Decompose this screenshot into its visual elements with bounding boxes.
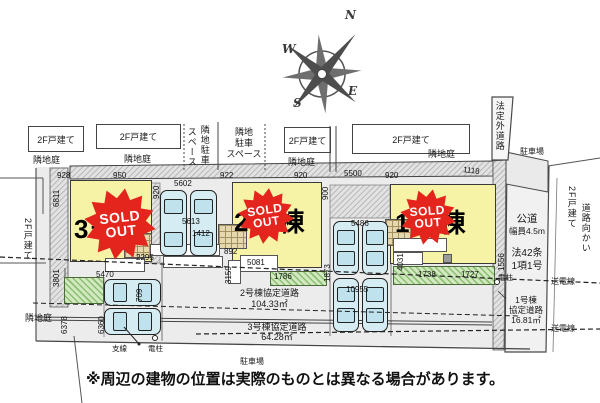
compass-rose-icon: [266, 18, 378, 130]
dim: 5500: [344, 170, 362, 178]
building-3-garden: [64, 277, 104, 304]
guy-wire-label: 支線: [112, 344, 127, 353]
neighbor-house-2-label: 2F戸建て: [120, 130, 158, 143]
utility-pole-right-label: 電柱: [498, 273, 513, 282]
compass-south-label: S: [293, 96, 302, 110]
dim: 900: [322, 187, 330, 200]
unofficial-road-label: 法定外道路: [494, 101, 505, 151]
power-line-label-2: 送電線: [551, 324, 575, 334]
compass-east-label: E: [348, 84, 357, 98]
kyotei-road-1-l2: 協定道路: [504, 305, 548, 315]
neighbor-parking-l3: スペース: [222, 149, 266, 160]
neighbor-parking-l2: 駐車: [222, 138, 266, 149]
south-parking-label: 駐車場: [240, 357, 264, 367]
car: [333, 221, 359, 275]
sold-out-line2: OUT: [410, 216, 446, 231]
kyotei-road-2-area: 104.33㎡: [222, 299, 317, 310]
neighbor-house-3: 2F戸建て: [284, 127, 331, 153]
dim: 5602: [174, 180, 192, 188]
dim: 6378: [61, 316, 69, 334]
dim: 2295: [136, 254, 154, 262]
car: [362, 221, 388, 275]
neighbor-parking-l1: 隣地: [222, 127, 266, 138]
dim: 1727: [461, 271, 479, 279]
dim: 892: [224, 248, 237, 256]
kyotei-road-1-area: 16.81㎡: [504, 315, 548, 325]
parking-bay2-hatch: [330, 185, 390, 218]
power-line-label-1: 送電線: [551, 277, 575, 287]
compass-north-label: N: [345, 8, 356, 22]
west-neighbor-house-label: 2F戸建て: [22, 218, 33, 261]
building-3-porch-b: [163, 256, 223, 268]
neighbor-parking-horizontal: 隣地 駐車 スペース: [222, 127, 266, 159]
public-road-width: 幅員4.5m: [503, 226, 551, 236]
dim: 920: [294, 172, 307, 180]
sold-out-line2: OUT: [249, 214, 286, 231]
dim: 1786: [274, 273, 292, 281]
public-road-name: 公道: [505, 213, 549, 226]
neighbor-parking-vertical-col2: 隣地駐車: [199, 125, 210, 165]
dim: 1556: [498, 253, 506, 271]
dim: 5470: [96, 271, 114, 279]
site-plan: N W S E 2F戸建て 隣地庭 2F戸建て 隣地庭 スペース 隣地駐車 隣地…: [0, 0, 600, 403]
public-road-law-1: 法42条: [505, 248, 549, 260]
dim: 5081: [247, 259, 265, 267]
dim: 1738: [418, 271, 436, 279]
kyotei-road-2-label: 2号棟協定道路: [222, 288, 317, 299]
neighbor-house-2: 2F戸建て: [96, 124, 181, 149]
dim: 5486: [351, 220, 369, 228]
dim: 709: [136, 289, 144, 302]
public-road-law-2: 1項1号: [505, 261, 549, 273]
neighbor-house-1-label: 2F戸建て: [37, 133, 75, 146]
neighbor-parking-vertical-col1: スペース: [186, 127, 197, 167]
building-1-equipment: [443, 254, 452, 263]
dim: 928: [57, 172, 70, 180]
neighbor-garden-1-label: 隣地庭: [33, 155, 60, 166]
utility-pole-bottom-label: 電柱: [148, 344, 163, 353]
dim: 5613: [182, 218, 200, 226]
dim: 1873: [324, 264, 332, 282]
neighbor-garden-3-label: 隣地庭: [288, 157, 315, 168]
dim: 3159: [225, 266, 233, 284]
dim: 6811: [53, 190, 61, 207]
car: [104, 279, 161, 306]
kyotei-road-1-l1: 1号棟: [504, 295, 548, 305]
dim: 4031: [397, 253, 405, 271]
building-1-green-strip: [393, 266, 495, 285]
west-neighbor-garden-label: 隣地庭: [25, 313, 52, 324]
dim: 3801: [53, 269, 61, 287]
sold-out-line2: OUT: [100, 222, 142, 240]
neighbor-house-4-label: 2F戸建て: [392, 133, 430, 146]
compass-west-label: W: [282, 42, 295, 56]
dim: 920: [385, 172, 398, 180]
ne-parking-label: 駐車場: [520, 147, 544, 157]
kyotei-road-3-area: 64.28㎡: [227, 332, 327, 343]
disclaimer-text: ※周辺の建物の位置は実際のものとは異なる場合があります。: [86, 368, 504, 389]
neighbor-house-1: 2F戸建て: [28, 126, 84, 152]
east-neighbor-house-label-2: 道路向かい: [580, 203, 591, 253]
dim: 950: [113, 172, 126, 180]
neighbor-garden-4-label: 隣地庭: [428, 149, 455, 160]
car: [104, 308, 161, 335]
neighbor-house-3-label: 2F戸建て: [289, 134, 327, 147]
building-1-porch-a: [393, 238, 447, 252]
dim: 10955: [346, 286, 368, 294]
neighbor-garden-2-label: 隣地庭: [124, 154, 151, 165]
dim: 922: [220, 172, 233, 180]
east-neighbor-house-label-1: 2F戸建て: [566, 186, 577, 229]
dim: 1412: [192, 230, 210, 238]
